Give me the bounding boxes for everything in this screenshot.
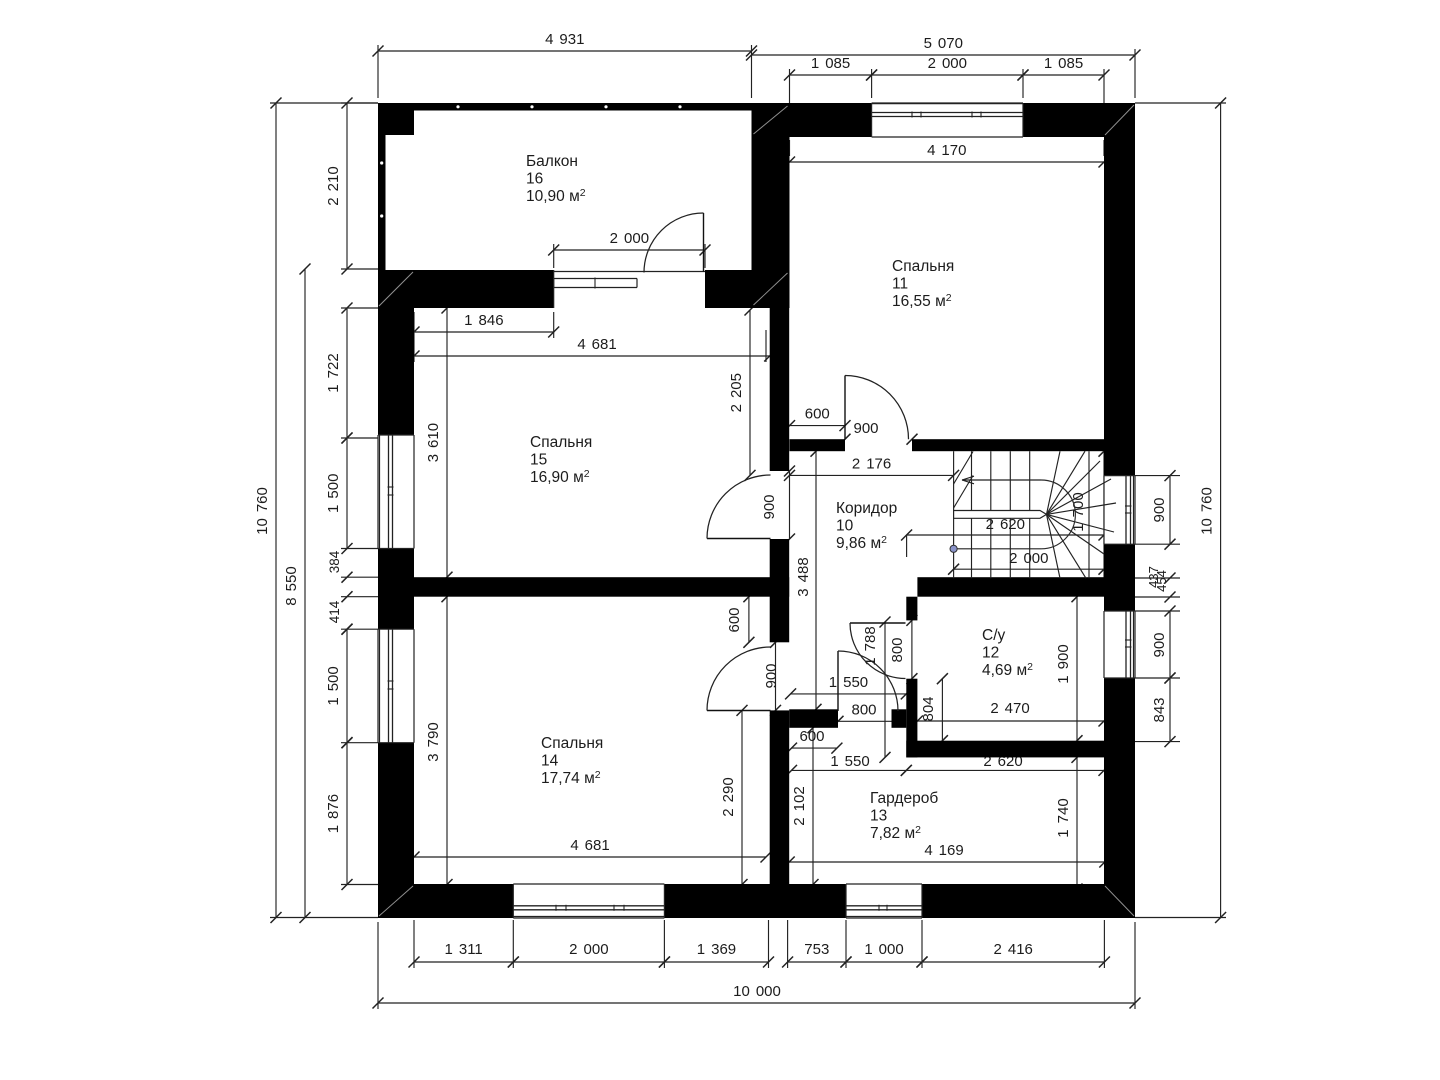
svg-text:1 700: 1 700 [1070, 492, 1087, 531]
svg-text:4 169: 4 169 [924, 842, 963, 859]
svg-text:600: 600 [726, 607, 743, 632]
svg-text:2 176: 2 176 [852, 455, 891, 472]
svg-text:3 610: 3 610 [425, 423, 442, 462]
svg-text:7,82 м2: 7,82 м2 [870, 824, 921, 842]
svg-text:800: 800 [851, 701, 876, 718]
svg-text:5 070: 5 070 [924, 35, 963, 52]
svg-text:4 681: 4 681 [577, 336, 616, 353]
svg-text:2 470: 2 470 [990, 700, 1029, 717]
svg-text:12: 12 [982, 645, 999, 662]
svg-text:Спальня: Спальня [892, 258, 954, 275]
svg-text:2 210: 2 210 [325, 166, 342, 205]
svg-text:1 311: 1 311 [445, 941, 483, 958]
svg-text:1 900: 1 900 [1055, 644, 1072, 683]
svg-text:1 500: 1 500 [325, 666, 342, 705]
svg-text:2 102: 2 102 [791, 786, 808, 825]
svg-text:10 760: 10 760 [1199, 487, 1216, 535]
svg-text:9,86 м2: 9,86 м2 [836, 534, 887, 552]
svg-text:Спальня: Спальня [530, 434, 592, 451]
svg-text:900: 900 [853, 420, 878, 437]
svg-text:Гардероб: Гардероб [870, 790, 938, 807]
svg-text:900: 900 [1151, 632, 1168, 657]
svg-text:1 085: 1 085 [811, 55, 850, 72]
svg-text:4 931: 4 931 [545, 31, 584, 48]
svg-text:1 500: 1 500 [325, 474, 342, 513]
svg-text:600: 600 [805, 406, 830, 423]
svg-text:2 416: 2 416 [994, 941, 1033, 958]
svg-text:1 876: 1 876 [325, 794, 342, 833]
svg-text:804: 804 [920, 696, 937, 721]
svg-text:384: 384 [327, 550, 342, 573]
svg-text:900: 900 [1151, 497, 1168, 522]
svg-text:2 000: 2 000 [610, 230, 649, 247]
svg-text:10: 10 [836, 518, 854, 535]
svg-text:15: 15 [530, 452, 547, 469]
svg-text:800: 800 [889, 637, 906, 662]
svg-text:1 846: 1 846 [464, 312, 503, 329]
svg-text:16,90 м2: 16,90 м2 [530, 468, 590, 486]
svg-text:414: 414 [327, 600, 342, 623]
svg-text:3 790: 3 790 [425, 722, 442, 761]
svg-text:600: 600 [799, 728, 824, 745]
svg-text:17,74 м2: 17,74 м2 [541, 769, 601, 787]
svg-text:16: 16 [526, 171, 543, 188]
svg-text:11: 11 [892, 276, 908, 293]
svg-text:4 170: 4 170 [927, 142, 966, 159]
svg-text:Коридор: Коридор [836, 500, 897, 517]
svg-text:1 550: 1 550 [830, 753, 869, 770]
svg-text:10 000: 10 000 [733, 983, 781, 1000]
svg-text:2 205: 2 205 [728, 373, 745, 412]
svg-text:1 085: 1 085 [1044, 55, 1083, 72]
svg-text:2 290: 2 290 [720, 777, 737, 816]
svg-text:16,55 м2: 16,55 м2 [892, 292, 952, 310]
svg-text:2 000: 2 000 [1009, 550, 1048, 567]
svg-text:1 550: 1 550 [829, 674, 868, 691]
svg-text:1 000: 1 000 [864, 941, 903, 958]
svg-text:843: 843 [1151, 697, 1168, 722]
svg-text:Спальня: Спальня [541, 735, 603, 752]
svg-text:1 369: 1 369 [697, 941, 736, 958]
svg-text:2 000: 2 000 [928, 55, 967, 72]
svg-text:4 681: 4 681 [570, 837, 609, 854]
svg-text:1 722: 1 722 [325, 353, 342, 392]
svg-text:С/у: С/у [982, 627, 1006, 644]
svg-text:900: 900 [761, 494, 778, 519]
svg-text:1 740: 1 740 [1055, 798, 1072, 837]
svg-text:753: 753 [804, 941, 829, 958]
svg-text:13: 13 [870, 808, 887, 825]
svg-text:2 000: 2 000 [569, 941, 608, 958]
svg-text:14: 14 [541, 753, 559, 770]
svg-text:4,69 м2: 4,69 м2 [982, 661, 1033, 679]
svg-text:3 488: 3 488 [795, 557, 812, 596]
svg-text:8 550: 8 550 [283, 566, 300, 605]
svg-text:Балкон: Балкон [526, 153, 578, 170]
svg-text:10,90 м2: 10,90 м2 [526, 187, 586, 205]
svg-text:900: 900 [763, 663, 780, 688]
svg-text:10 760: 10 760 [254, 487, 271, 535]
